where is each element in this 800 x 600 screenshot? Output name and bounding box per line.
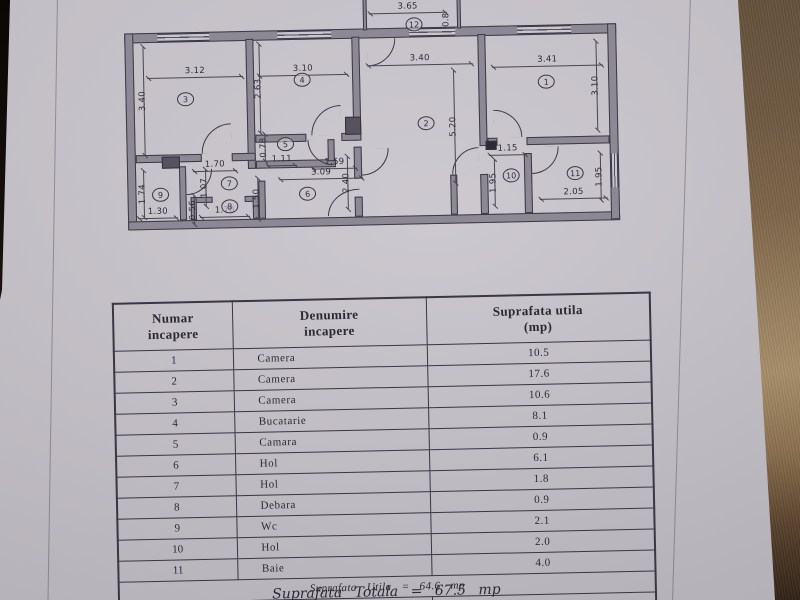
dimension-label: 3.40 xyxy=(142,47,156,155)
dimension-label: 3.10 xyxy=(595,41,609,129)
room-number-badge: 11 xyxy=(567,166,584,180)
dimension-text: 1.50 xyxy=(252,189,262,209)
photo-scene: 3.650.83.123.403.102.633.405.203.413.100… xyxy=(0,0,800,600)
room-number-badge: 9 xyxy=(152,188,169,202)
window-marker xyxy=(517,25,571,34)
dimension-line xyxy=(369,12,447,15)
dimension-label: 2.40 xyxy=(347,157,360,209)
header-room-area: Suprafata utila (mp) xyxy=(426,293,651,345)
dimension-label: 3.12 xyxy=(147,65,243,79)
window-marker xyxy=(157,33,209,42)
dimension-text: 3.40 xyxy=(138,91,148,111)
dimension-label: 3.40 xyxy=(367,52,473,66)
dimension-line xyxy=(138,217,178,219)
dimension-label: 1.30 xyxy=(138,206,178,219)
room-number-badge: 5 xyxy=(277,137,294,151)
dimension-text: 2.05 xyxy=(539,186,607,197)
dimension-label: 1.07 xyxy=(205,170,218,206)
masonry-block xyxy=(162,156,180,168)
dimension-text: 0.56 xyxy=(188,200,198,220)
dimension-text: 3.12 xyxy=(147,65,243,77)
door-arc xyxy=(362,148,390,176)
room-number-badge: 6 xyxy=(299,187,316,201)
room-number-cell: 7 xyxy=(116,475,235,498)
room-number-badge: 3 xyxy=(177,92,194,106)
room-number-badge: 7 xyxy=(221,176,238,190)
room-number-cell: 11 xyxy=(118,559,237,582)
dimension-line xyxy=(540,197,608,199)
room-number-cell: 5 xyxy=(116,433,235,456)
dimension-text: 3.65 xyxy=(369,1,447,13)
dimension-label: 1.95 xyxy=(494,160,507,206)
header-room-name: Denumire incapere xyxy=(232,297,427,349)
room-number-cell: 4 xyxy=(115,412,234,435)
dimension-label: 3.41 xyxy=(492,53,603,67)
room-number-cell: 1 xyxy=(114,349,233,372)
dimension-label: 1.50 xyxy=(257,179,270,219)
wall-segment xyxy=(477,34,487,146)
dimension-text: 1.11 xyxy=(267,154,297,165)
room-number-cell: 9 xyxy=(117,517,236,540)
paper-document: 3.650.83.123.403.102.633.405.203.413.100… xyxy=(0,0,800,600)
room-number-badge: 2 xyxy=(417,116,434,130)
balcony-wall xyxy=(362,0,367,31)
dimension-text: 2.63 xyxy=(253,79,263,99)
dimension-label: 1.15 xyxy=(489,143,527,156)
room-area-table: Numar incapere Denumire incapere Suprafa… xyxy=(112,292,658,600)
dimension-label: 2.63 xyxy=(258,44,272,132)
dimension-line xyxy=(200,216,250,218)
dimension-label: 5.20 xyxy=(453,70,467,182)
wall-segment xyxy=(124,33,137,229)
dimension-text: 2.40 xyxy=(341,173,351,193)
document-content: 3.650.83.123.403.102.633.405.203.413.100… xyxy=(0,0,800,600)
masonry-block xyxy=(345,117,361,135)
dimension-text: 1.95 xyxy=(594,166,604,186)
dimension-text: 0.8 xyxy=(441,12,451,27)
door-arc xyxy=(493,109,523,138)
dimension-text: 1.30 xyxy=(138,206,178,217)
door-arc xyxy=(532,146,560,174)
dimension-text: 1.70 xyxy=(193,159,237,170)
room-number-cell: 6 xyxy=(116,454,235,477)
room-number-cell: 8 xyxy=(117,496,236,519)
room-number-cell: 3 xyxy=(115,391,234,414)
area-table: Numar incapere Denumire incapere Suprafa… xyxy=(112,292,656,600)
door-arc xyxy=(201,123,232,154)
table-body: 1Camera10.52Camera17.63Camera10.64Bucata… xyxy=(114,340,657,600)
door-arc xyxy=(311,105,342,136)
room-number-cell: 2 xyxy=(114,370,233,393)
dimension-text: 3.10 xyxy=(590,75,600,95)
wall-segment xyxy=(526,135,609,145)
header-room-number: Numar incapere xyxy=(113,301,233,351)
room-number-cell: 10 xyxy=(118,538,237,561)
room-number-badge: 10 xyxy=(503,168,520,182)
dimension-label: 1.11 xyxy=(267,154,297,167)
room-number-badge: 1 xyxy=(538,75,555,89)
window-marker xyxy=(277,30,331,39)
wall-segment xyxy=(245,39,256,169)
dimension-text: 5.20 xyxy=(448,116,458,136)
dimension-text: 1.74 xyxy=(138,184,148,204)
dimension-text: 1.95 xyxy=(488,173,498,193)
dimension-line xyxy=(489,154,527,156)
dimension-label: 0.8 xyxy=(447,6,460,32)
dimension-label: 2.05 xyxy=(539,186,607,199)
dimension-label: 3.65 xyxy=(369,1,447,15)
room-number-badge: 4 xyxy=(294,73,311,87)
dimension-text: 1.15 xyxy=(489,143,527,154)
